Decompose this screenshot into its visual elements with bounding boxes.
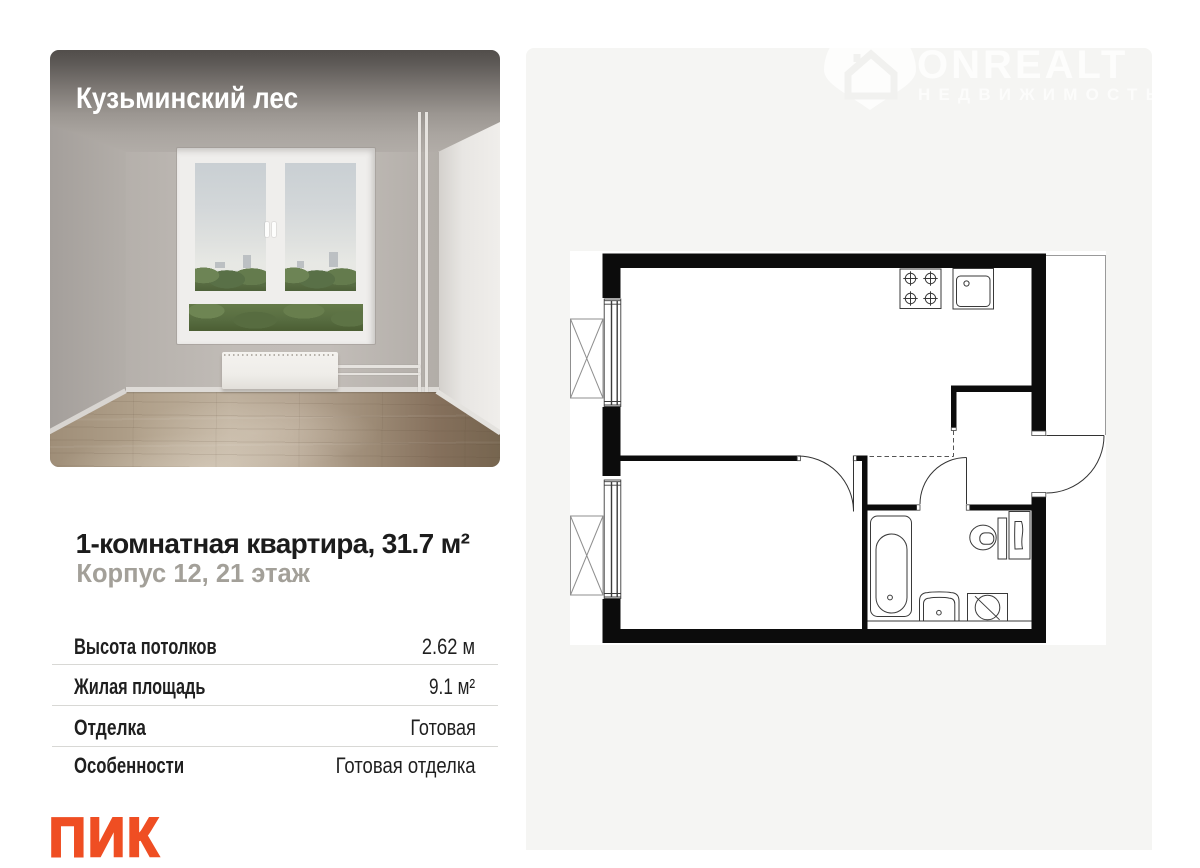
svg-text:ONREALT: ONREALT [917,48,1128,87]
svg-text:НЕДВИЖИМОСТЬ: НЕДВИЖИМОСТЬ [918,85,1152,104]
